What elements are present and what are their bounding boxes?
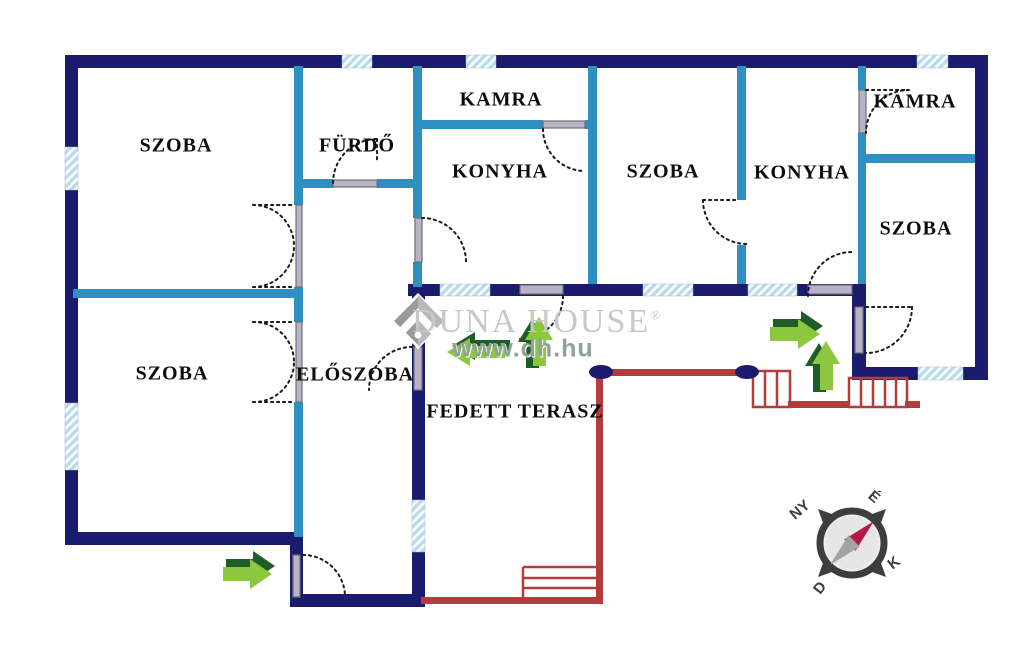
sill-kamra-mid [543, 121, 585, 128]
compass-rose-icon [784, 475, 920, 611]
window-terrace-2 [643, 284, 693, 296]
sill-terrace-door-2 [808, 285, 852, 294]
door-arc-szoba-mid [703, 200, 747, 244]
door-arc-konyha-mid [422, 218, 466, 262]
terrace-steps [523, 567, 599, 598]
sill-double-door-2 [296, 322, 302, 402]
wall-konyha-left-lower [413, 262, 422, 287]
window-top-2 [466, 55, 496, 68]
entry-arrow-up-porch-icon [805, 341, 840, 392]
window-left-1 [65, 147, 78, 190]
terrace-post-1 [589, 365, 613, 379]
window-top-3 [917, 55, 948, 68]
sill-konyha-mid [415, 218, 422, 262]
floor-plan-image: DUNA HOUSE® www.dh.hu SZOBA FÜRDŐ KAMRA … [0, 0, 1024, 652]
window-left-2 [65, 403, 78, 470]
window-terrace-3 [748, 284, 797, 296]
window-terrace-1 [440, 284, 490, 296]
porch-stairs-right [849, 378, 907, 407]
wall-vestibule-bottom [290, 594, 425, 607]
sill-szoba-right [855, 307, 863, 353]
porch-stairs-left [753, 371, 790, 407]
door-arc-front-door [303, 555, 345, 597]
entry-arrow-left-icon [447, 332, 510, 366]
door-arc-kamra-right [866, 90, 909, 133]
door-arc-furdo [333, 139, 377, 183]
inner-walls [73, 66, 975, 537]
porch-edge-top [600, 369, 753, 376]
sill-double-door-1 [296, 205, 302, 287]
wall-szoba-konyha2-upper [737, 66, 746, 200]
wall-furdo-bottom-a [303, 179, 333, 188]
wall-kamra-mid-bottom-a [422, 120, 543, 129]
window-vestibule [412, 500, 425, 552]
wall-hall-lower [294, 402, 303, 537]
sill-furdo [333, 180, 377, 187]
entry-arrow-right-porch-icon [770, 311, 823, 349]
door-arcs [253, 90, 912, 597]
watermark-logo-icon [392, 295, 444, 347]
wall-szoba-konyha2-lower [737, 245, 746, 284]
door-arc-eloszoba [369, 347, 412, 390]
door-sills [293, 90, 866, 597]
wall-hall-mid [294, 287, 303, 322]
windows [65, 55, 963, 552]
wall-right [975, 55, 988, 380]
wall-konyha-szoba-divider [588, 66, 597, 284]
sill-front-door [293, 555, 300, 597]
terrace-edge-bottom [421, 597, 603, 604]
window-szoba-right [918, 367, 963, 380]
wall-furdo-bottom-b [377, 179, 413, 188]
wall-konyha2-right-lower [858, 133, 866, 284]
entry-arrows [223, 311, 840, 589]
double-door-upper [253, 205, 294, 287]
wall-bottom-left [65, 532, 303, 545]
wall-kamra-right-bottom [866, 154, 975, 163]
wall-hall-upper [294, 66, 303, 205]
window-top-1 [342, 55, 372, 68]
wall-top [65, 55, 988, 68]
sill-terrace-door-1 [520, 285, 563, 294]
floor-plan-canvas [0, 0, 1024, 652]
door-arc-kamra-mid [543, 129, 585, 171]
terrace-post-2 [735, 365, 759, 379]
entry-arrow-up-terrace-icon [518, 317, 553, 368]
wall-left [65, 55, 78, 545]
wall-konyha-left-upper [413, 66, 422, 218]
porch-edge-mid [788, 401, 849, 408]
terrace-edge-right [596, 370, 603, 604]
wall-left-szoba-divider [73, 289, 294, 298]
door-arc-szoba-right [866, 307, 912, 353]
entry-arrow-right-front-icon [223, 551, 275, 589]
sill-kamra-right [859, 90, 866, 133]
wall-konyha2-right-upper [858, 66, 866, 90]
sill-eloszoba [414, 347, 422, 390]
double-door-lower [253, 322, 294, 402]
